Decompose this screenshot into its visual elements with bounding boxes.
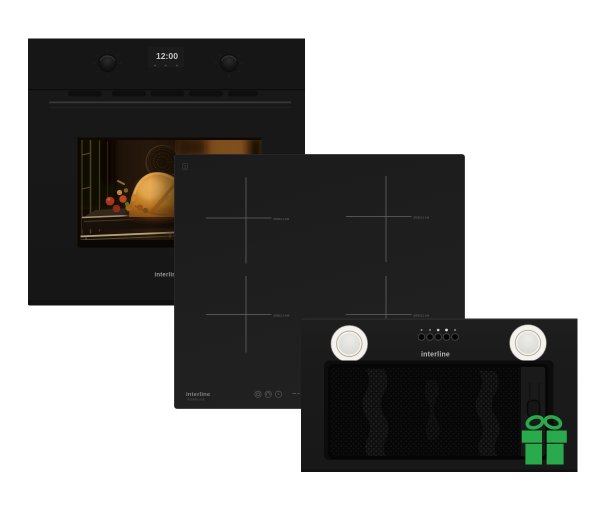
- svg-text:Ø200/2,1 kW: Ø200/2,1 kW: [414, 215, 430, 219]
- svg-text:Ø160/1,4 kW: Ø160/1,4 kW: [274, 217, 290, 221]
- svg-text:MODERN LINE: MODERN LINE: [187, 399, 205, 402]
- svg-text:Ø200/2,1 kW: Ø200/2,1 kW: [414, 313, 430, 317]
- svg-text:Ø160/1,4 kW: Ø160/1,4 kW: [274, 313, 290, 317]
- svg-text:12:00: 12:00: [156, 51, 178, 61]
- svg-text:interline: interline: [186, 392, 211, 398]
- svg-text:interline: interline: [421, 351, 450, 358]
